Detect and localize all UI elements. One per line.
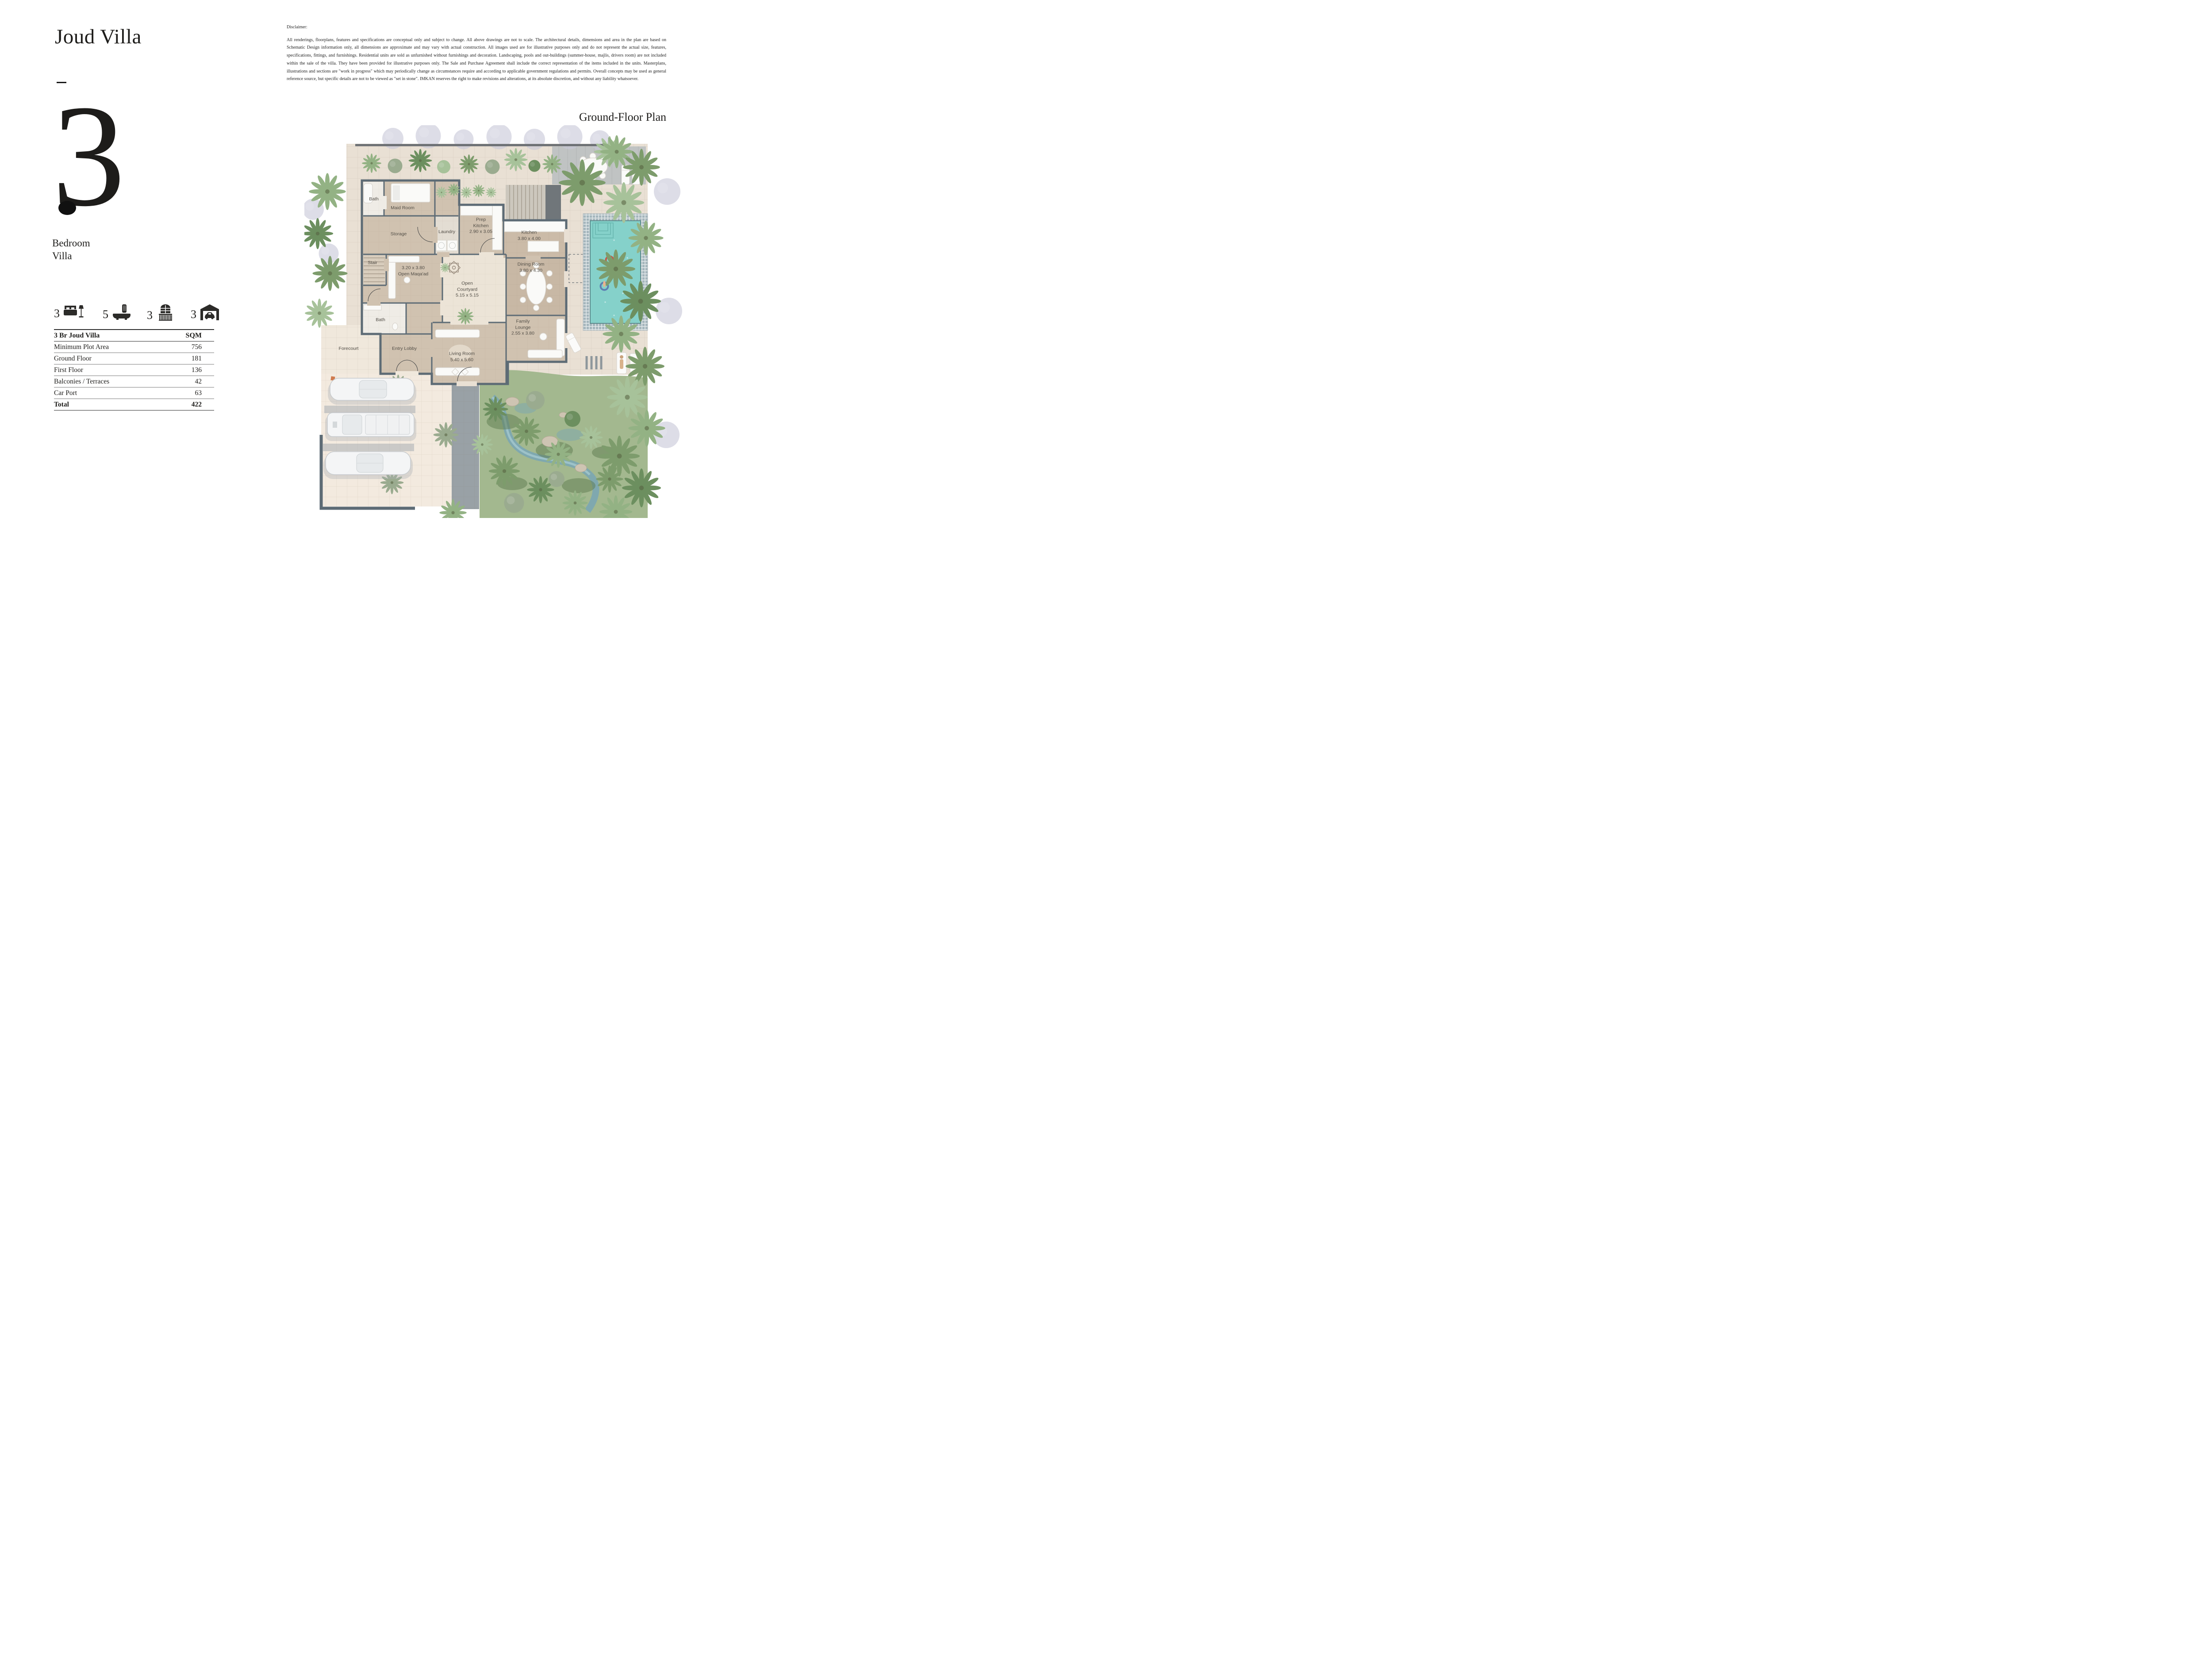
room-label-kitchen: Kitchen3.80 x 4.00	[518, 230, 541, 242]
room-label-prep-kitchen: Prep Kitchen2.90 x 3.05	[468, 217, 494, 235]
disclaimer-heading: Disclaimer:	[287, 24, 666, 31]
plan-heading: Ground-Floor Plan	[509, 111, 666, 124]
room-label-bath-1: Bath	[369, 196, 379, 203]
room-label-bath-2: Bath	[376, 317, 385, 323]
table-row: Balconies / Terraces42	[54, 376, 214, 387]
carport-icon	[200, 304, 219, 320]
table-title: 3 Br Joud Villa	[54, 332, 100, 340]
dining-table	[526, 269, 546, 304]
unit-type-line2: Villa	[52, 250, 90, 263]
exterior-stair	[506, 185, 561, 220]
table-row: Minimum Plot Area756	[54, 341, 214, 353]
stat-bathrooms: 5	[103, 304, 131, 320]
car	[325, 413, 416, 441]
room-label-dining-room: Dining Room3.80 x 4.30	[518, 261, 545, 273]
bedroom-count-figure: 3	[52, 87, 136, 224]
room-label-forecourt: Forecourt	[339, 346, 359, 352]
floor-plan-art	[304, 125, 691, 518]
toilet	[392, 323, 398, 330]
table-row: Car Port63	[54, 387, 214, 399]
area-table: 3 Br Joud Villa SQM Minimum Plot Area756…	[54, 329, 214, 410]
table-unit-label: SQM	[180, 332, 214, 340]
room-label-living-room: Living Room5.40 x 5.60	[449, 351, 475, 363]
living-sofa	[435, 330, 480, 338]
washer	[436, 240, 446, 251]
stat-bedrooms: 3	[54, 304, 85, 319]
bath-icon	[112, 304, 131, 320]
page-title: Joud Villa	[55, 25, 142, 49]
unit-type: Bedroom Villa	[52, 237, 90, 263]
bedrooms-count: 3	[54, 308, 60, 319]
dryer	[447, 240, 457, 251]
stat-balconies: 3	[147, 304, 174, 321]
car	[323, 452, 413, 479]
car-ports-count: 3	[191, 309, 196, 320]
bed-icon	[64, 304, 85, 319]
cars	[323, 378, 416, 479]
table-row: First Floor136	[54, 364, 214, 376]
room-label-family-lounge: Family Lounge2.55 x 3.80	[511, 319, 534, 337]
balcony-icon	[157, 304, 174, 321]
room-label-maid-room: Maid Room	[391, 205, 415, 211]
room-label-open-courtyard: Open Courtyard5.15 x 5.15	[453, 281, 481, 299]
room-label-stair: Stair	[368, 260, 377, 266]
table-header-row: 3 Br Joud Villa SQM	[54, 330, 214, 341]
floor-plan: Bath Maid Room Storage Laundry Prep Kitc…	[304, 125, 691, 518]
table-row: Ground Floor181	[54, 353, 214, 364]
balconies-count: 3	[147, 310, 153, 321]
car	[328, 378, 416, 405]
brochure-page: Joud Villa 3 Bedroom Villa 3 5	[0, 0, 694, 520]
disclaimer-body: All renderings, floorplans, features and…	[287, 36, 666, 84]
room-label-storage: Storage	[391, 231, 407, 238]
disclaimer: Disclaimer: All renderings, floorplans, …	[287, 24, 666, 83]
room-label-entry-lobby: Entry Lobby	[392, 346, 417, 352]
numeral-dot	[58, 201, 76, 215]
room-label-laundry: Laundry	[438, 229, 455, 235]
unit-type-line1: Bedroom	[52, 237, 90, 250]
bathrooms-count: 5	[103, 309, 108, 320]
kitchen-island	[528, 241, 559, 252]
stat-car-ports: 3	[191, 304, 219, 320]
table-total-row: Total422	[54, 399, 214, 410]
room-label-open-maqaad: 3.20 x 3.80Open Maqa'ad	[398, 265, 429, 277]
